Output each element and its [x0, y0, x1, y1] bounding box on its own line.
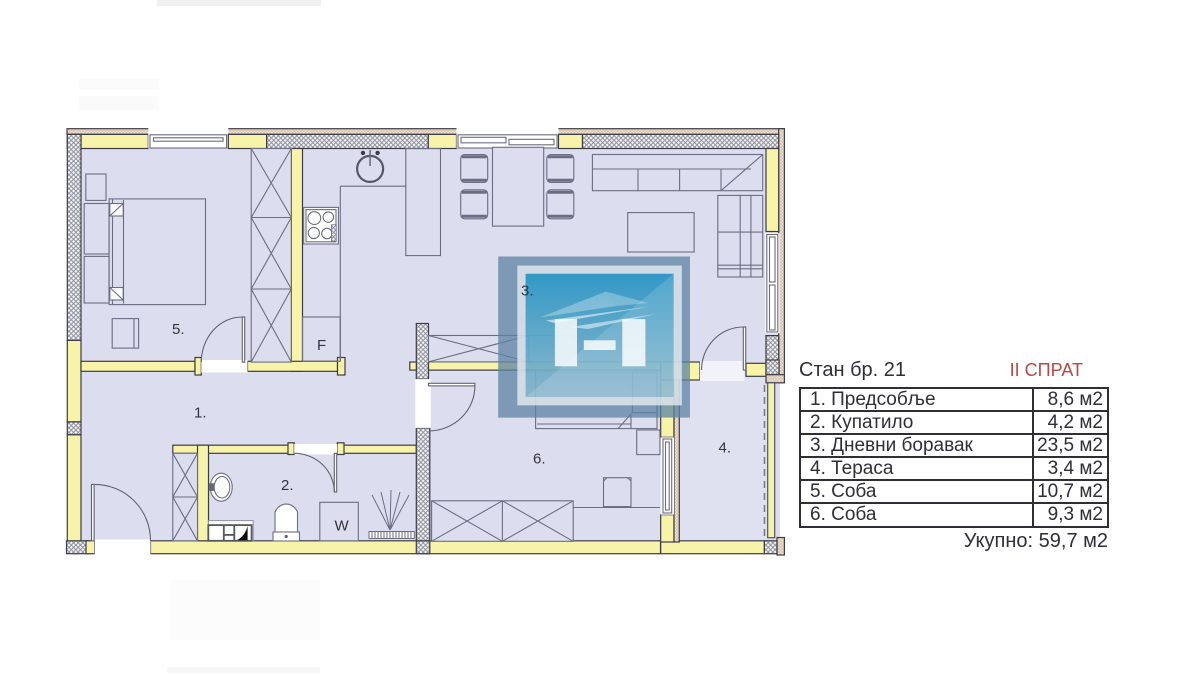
svg-text:1.: 1. [194, 405, 207, 422]
svg-text:F: F [317, 337, 326, 354]
svg-text:2.: 2. [281, 477, 294, 494]
svg-text:4.: 4. [719, 440, 732, 457]
svg-text:W: W [335, 518, 350, 535]
svg-text:3.: 3. [521, 283, 534, 300]
svg-text:6.: 6. [533, 450, 546, 467]
svg-text:5.: 5. [172, 321, 185, 338]
